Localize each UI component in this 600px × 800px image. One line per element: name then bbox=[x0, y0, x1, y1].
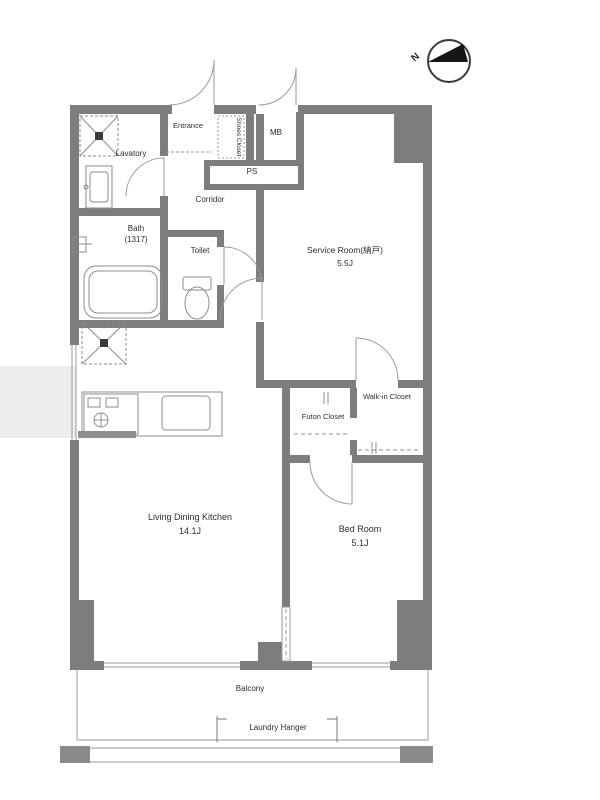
toilet-bowl bbox=[183, 277, 211, 319]
corridor-label: Corridor bbox=[178, 195, 242, 205]
meter-box-door bbox=[259, 68, 296, 105]
lavatory-door bbox=[126, 158, 164, 196]
sliding-door bbox=[282, 607, 290, 661]
bath-size: (1317) bbox=[104, 235, 168, 245]
compass-icon bbox=[428, 40, 470, 82]
service-room-size: 5.5J bbox=[268, 258, 422, 268]
laundry-hanger-label: Laundry Hanger bbox=[226, 723, 330, 733]
service-room-door bbox=[220, 278, 262, 320]
bath-label: Bath bbox=[104, 224, 168, 234]
walk-in-closet-door bbox=[356, 338, 398, 380]
kitchen-sink bbox=[162, 396, 210, 430]
lavatory-label: Lavatory bbox=[96, 149, 166, 159]
bathtub bbox=[73, 237, 162, 318]
shoes-closet-label: Shoes Closet bbox=[216, 117, 242, 157]
refrigerator-space bbox=[82, 322, 126, 364]
bedroom-closet-door bbox=[310, 462, 352, 504]
living-dining-kitchen-label: Living Dining Kitchen bbox=[108, 512, 272, 523]
living-dining-kitchen-size: 14.1J bbox=[108, 526, 272, 537]
bed-room-size: 5.1J bbox=[308, 538, 412, 549]
kitchen-counter bbox=[78, 392, 222, 438]
bed-room-label: Bed Room bbox=[308, 524, 412, 535]
lavatory-sink bbox=[84, 166, 112, 208]
floor-plan: Lavatory Bath (1317) Toilet Entrance Sho… bbox=[0, 0, 600, 800]
floor-plan-drawing bbox=[0, 0, 600, 800]
kitchen-stove bbox=[84, 394, 138, 434]
service-room-label: Service Room(納戸) bbox=[268, 245, 422, 255]
meter-box-label: MB bbox=[252, 128, 300, 138]
walk-in-closet-label: Walk-in Closet bbox=[354, 392, 420, 401]
watermark bbox=[0, 366, 76, 438]
pipe-space-label: PS bbox=[208, 167, 296, 177]
futon-closet-label: Futon Closet bbox=[294, 412, 352, 421]
entrance-label: Entrance bbox=[160, 121, 216, 130]
balcony-label: Balcony bbox=[198, 684, 302, 694]
entrance-door bbox=[169, 60, 214, 105]
windows bbox=[72, 345, 390, 667]
toilet-label: Toilet bbox=[176, 246, 224, 256]
walls bbox=[70, 105, 432, 670]
